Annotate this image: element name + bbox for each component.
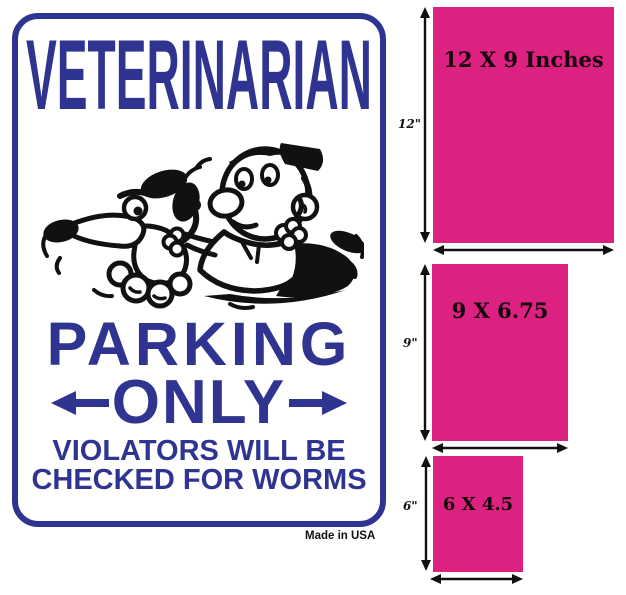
sign-title: VETERINARIAN — [24, 36, 374, 114]
right-arrow-icon — [289, 390, 347, 416]
made-in-usa-label: Made in USA — [305, 530, 375, 542]
width-arrow-6x45-icon — [430, 572, 523, 586]
size-swatch-9x675: 9 X 6.75 — [432, 264, 568, 441]
left-arrow-icon — [51, 390, 109, 416]
product-image: VETERINARIAN — [0, 0, 626, 595]
size-swatch-12x9: 12 X 9 Inches — [433, 7, 614, 243]
violators-text-line1: VIOLATORS WILL BE — [18, 436, 380, 467]
height-value-6: 6" — [403, 499, 418, 513]
height-arrow-6-icon — [419, 456, 433, 571]
height-arrow-9-icon — [418, 264, 432, 441]
vet-dog-cartoon — [34, 138, 364, 312]
size-swatch-6x45: 6 X 4.5 — [433, 456, 523, 572]
only-text: ONLY — [112, 372, 287, 434]
parking-sign-panel: VETERINARIAN — [12, 13, 386, 527]
size-label-9x675: 9 X 6.75 — [432, 298, 568, 323]
sign-title-text: VETERINARIAN — [26, 36, 372, 114]
size-label-6x45: 6 X 4.5 — [433, 494, 523, 515]
violators-text-line2: CHECKED FOR WORMS — [18, 465, 380, 496]
height-value-12: 12" — [398, 117, 421, 131]
width-arrow-9x675-icon — [432, 441, 568, 455]
height-value-9: 9" — [403, 336, 418, 350]
only-row: ONLY — [18, 371, 380, 435]
width-arrow-12x9-icon — [433, 243, 614, 257]
size-label-12x9: 12 X 9 Inches — [433, 47, 614, 72]
